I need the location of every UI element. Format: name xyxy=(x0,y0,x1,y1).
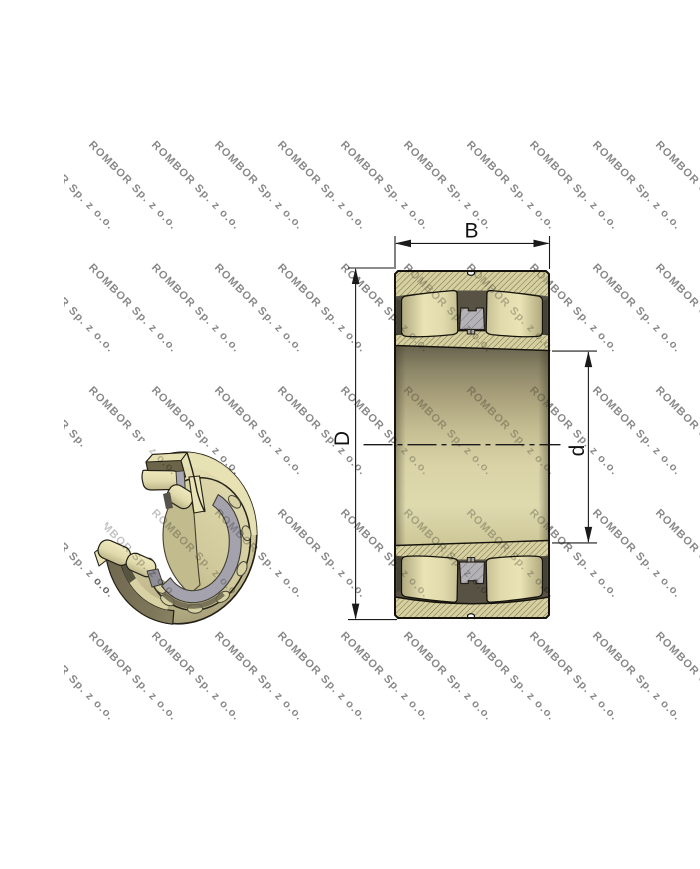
svg-text:d: d xyxy=(566,445,589,457)
svg-text:D: D xyxy=(331,431,354,446)
svg-text:B: B xyxy=(464,220,478,243)
